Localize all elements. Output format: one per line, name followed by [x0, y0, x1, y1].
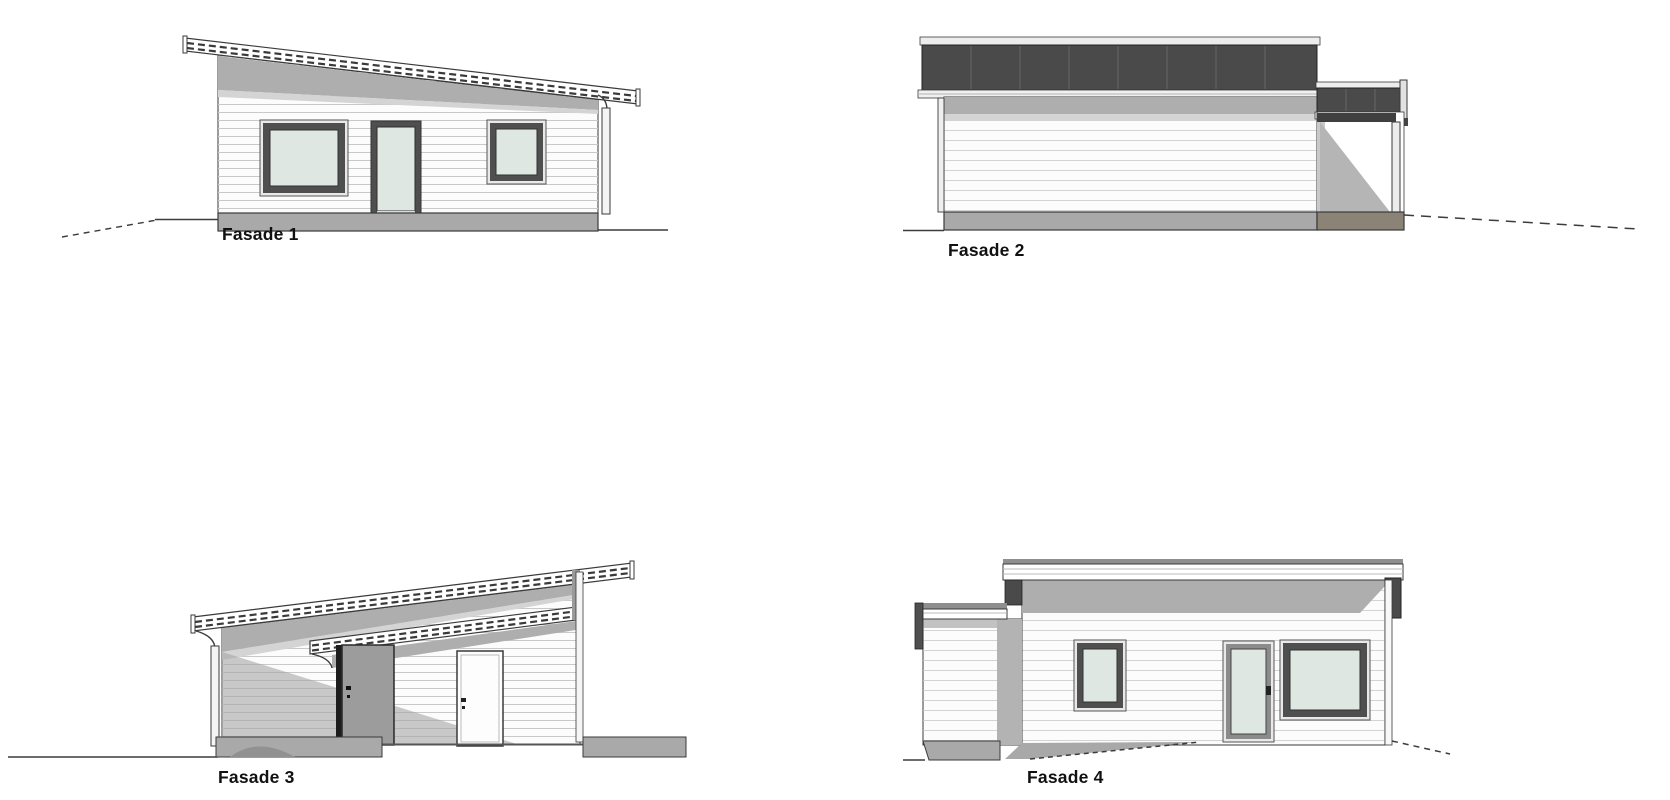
annex-roof-end-cap: [915, 603, 923, 649]
fasade-2-carport: [1317, 112, 1404, 212]
fasade-1-window-large: [260, 120, 348, 196]
fasade-3-slab: [583, 737, 686, 757]
door-handle: [1266, 686, 1271, 695]
carport-post: [1392, 122, 1400, 212]
fasade-4-annex: [915, 603, 1022, 760]
fasade-3-white-door: [457, 651, 503, 746]
fasade-4-label: Fasade 4: [1027, 767, 1104, 788]
door-handle: [346, 686, 351, 690]
elevations-canvas: [0, 0, 1670, 800]
fasade-4-window-large: [1280, 640, 1370, 720]
fasade-4-door: [1223, 641, 1274, 742]
fasade-4-driveway: [1005, 742, 1200, 759]
fasade-2-drawing: [903, 37, 1638, 231]
fasade-2-roof: [918, 37, 1320, 98]
fasade-1-label: Fasade 1: [222, 224, 299, 245]
fasade-1-window-small: [487, 120, 546, 184]
carport-beam: [1317, 113, 1396, 122]
fasade-4-drawing: [903, 559, 1450, 760]
fasade-4-corner-board: [1385, 580, 1392, 745]
eave-shadow: [1022, 580, 1385, 613]
fasade-3-label: Fasade 3: [218, 767, 295, 788]
annex-shadow: [997, 619, 1022, 745]
fasade-3-corner-board: [576, 572, 583, 742]
fasade-3-gray-door: [336, 645, 394, 745]
door-handle: [461, 698, 466, 702]
fasade-1-downspout: [598, 95, 610, 214]
fasade-2-label: Fasade 2: [948, 240, 1025, 261]
fasade-4-roof-junction: [1005, 580, 1022, 605]
fasade-1-door: [371, 121, 421, 220]
fasade-2-wall: [944, 97, 1317, 212]
fasade-3-drawing: [8, 561, 686, 757]
elevation-sheet: Fasade 1 Fasade 2 Fasade 3 Fasade 4: [0, 0, 1670, 800]
fasade-4-window-small: [1074, 640, 1126, 711]
eave-shadow: [944, 97, 1317, 114]
fasade-1-drawing: [62, 36, 668, 237]
fasade-2-carport-slab: [1317, 212, 1404, 230]
annex-foundation: [923, 741, 1000, 760]
fasade-2-downspout: [938, 98, 944, 212]
fasade-3-downspout: [196, 631, 219, 746]
fasade-2-foundation: [944, 212, 1317, 230]
